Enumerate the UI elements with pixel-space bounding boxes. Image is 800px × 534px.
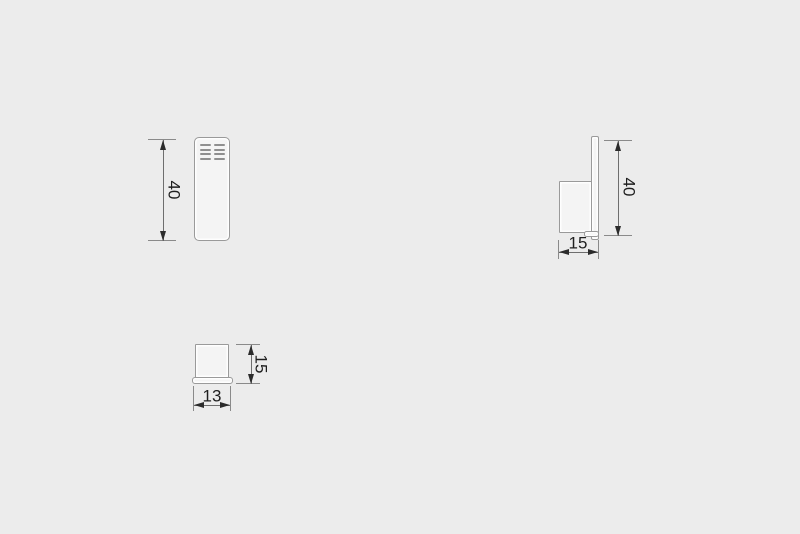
vent-slot [200, 149, 211, 151]
arrow-right-icon [220, 402, 230, 408]
arrow-left-icon [559, 249, 569, 255]
arrow-up-icon [160, 140, 166, 150]
front-view-body [194, 137, 230, 241]
bottom-view-body [195, 344, 229, 378]
arrow-down-icon [615, 226, 621, 236]
vent-slot [214, 158, 225, 160]
vent-slot [200, 144, 211, 146]
vent-slot [214, 144, 225, 146]
vent-slot [200, 153, 211, 155]
bottom-view-backplate [192, 377, 233, 384]
vent-slot [214, 149, 225, 151]
side-view-backplate [591, 136, 599, 240]
dim-label-bottom-width: 13 [203, 388, 222, 405]
arrow-up-icon [615, 141, 621, 151]
dim-label-front-height: 40 [166, 181, 183, 200]
arrow-up-icon [248, 345, 254, 355]
side-view-body [559, 181, 592, 233]
dim-label-side-height: 40 [621, 178, 638, 197]
drawing-canvas: 40 40 15 [0, 0, 800, 534]
arrow-down-icon [248, 374, 254, 384]
extension-line [230, 386, 231, 411]
dim-label-bottom-height: 15 [253, 355, 270, 374]
vent-slot [200, 158, 211, 160]
arrow-down-icon [160, 231, 166, 241]
dim-label-side-depth: 15 [569, 235, 588, 252]
extension-line [598, 240, 599, 259]
vent-grid [200, 144, 225, 160]
arrow-right-icon [588, 249, 598, 255]
vent-slot [214, 153, 225, 155]
